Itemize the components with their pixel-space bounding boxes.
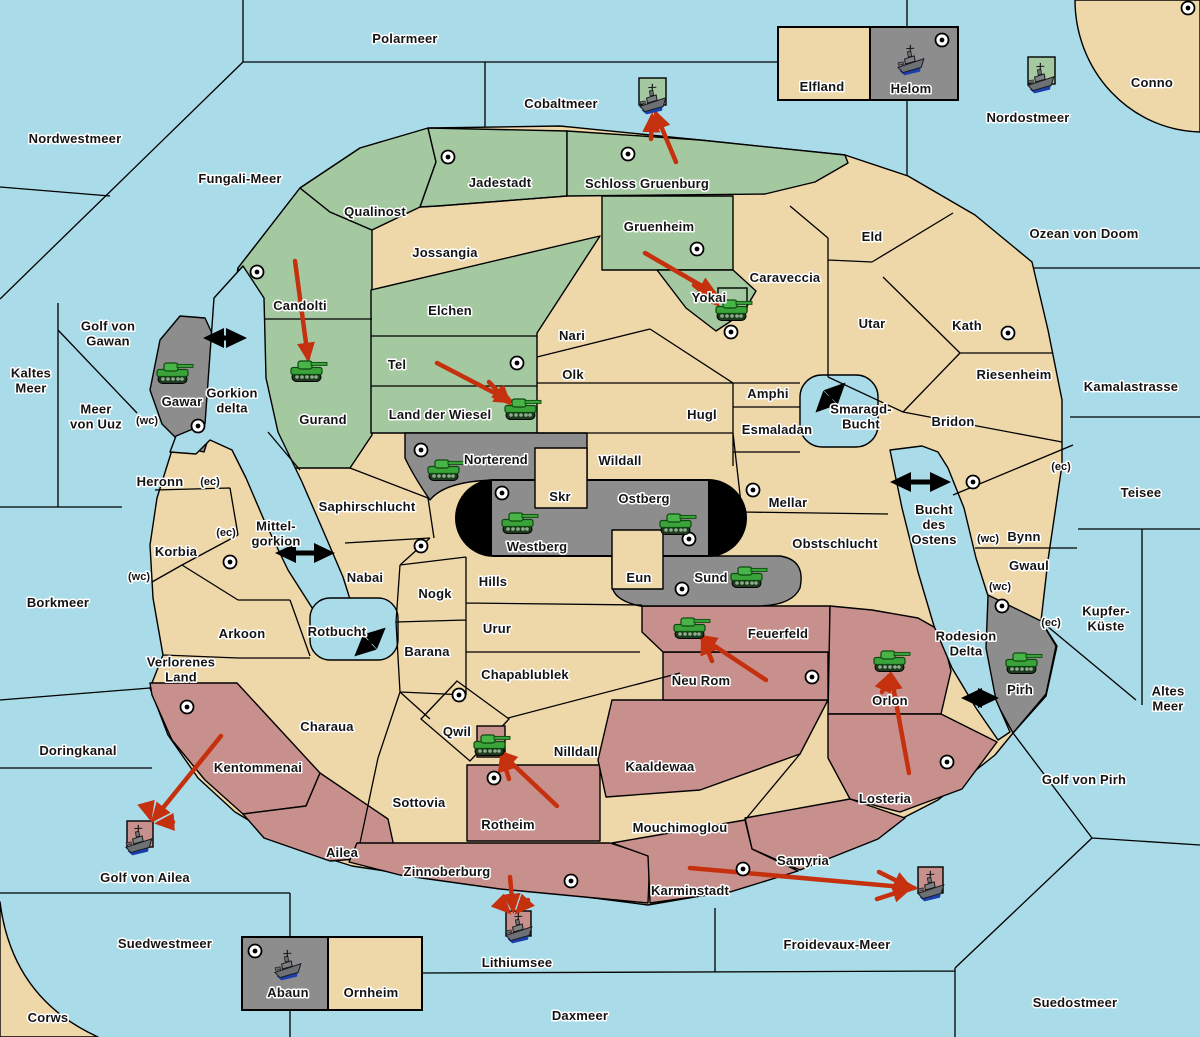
supply-center-dot (442, 151, 455, 164)
label-tel: Tel (388, 357, 406, 372)
move-arrow (147, 806, 150, 817)
label-norterend: Norterend (464, 452, 528, 467)
label-golf-von-ailea: Golf von Ailea (100, 870, 190, 885)
supply-center-dot (415, 444, 428, 457)
label-kupfer: Kupfer-Küste (1082, 604, 1130, 634)
label-saphirschlucht: Saphirschlucht (319, 499, 416, 514)
label-suedwestmeer: Suedwestmeer (118, 936, 212, 951)
label-ostberg: Ostberg (618, 491, 669, 506)
label-bynn: Bynn (1007, 529, 1040, 544)
label-pirh: Pirh (1007, 682, 1033, 697)
label-qualinost: Qualinost (344, 204, 406, 219)
coast-marker-wc: (wc) (977, 533, 999, 545)
label-urur: Urur (483, 621, 511, 636)
label-land-der-wiesel: Land der Wiesel (389, 407, 492, 422)
label-ozean-von-doom: Ozean von Doom (1030, 226, 1139, 241)
label-kentommenai: Kentommenai (214, 760, 302, 775)
label-riesenheim: Riesenheim (977, 367, 1052, 382)
move-arrow (651, 117, 652, 139)
label-heronn: Heronn (137, 474, 184, 489)
label-gwaul: Gwaul (1009, 558, 1049, 573)
label-mellar: Mellar (769, 495, 808, 510)
label-charaua: Charaua (300, 719, 354, 734)
label-rotheim: Rotheim (481, 817, 534, 832)
supply-center-dot (936, 34, 949, 47)
label-korbia: Korbia (155, 544, 198, 559)
supply-center-dot (1182, 2, 1195, 15)
label-samyria: Samyria (777, 853, 830, 868)
label-karminstadt: Karminstadt (651, 883, 730, 898)
label-gruenheim: Gruenheim (624, 219, 694, 234)
label-feuerfeld: Feuerfeld (748, 626, 808, 641)
supply-center-dot (941, 756, 954, 769)
supply-center-dot (691, 243, 704, 256)
label-ornheim: Ornheim (344, 985, 399, 1000)
label-altes: AltesMeer (1152, 684, 1185, 714)
label-daxmeer: Daxmeer (552, 1008, 608, 1023)
supply-center-dot (565, 875, 578, 888)
supply-center-dot (181, 701, 194, 714)
label-fungali-meer: Fungali-Meer (198, 171, 281, 186)
coast-marker-wc: (wc) (136, 415, 158, 427)
label-nordostmeer: Nordostmeer (986, 110, 1069, 125)
supply-center-dot (622, 148, 635, 161)
label-suedostmeer: Suedostmeer (1033, 995, 1118, 1010)
label-abaun: Abaun (267, 985, 308, 1000)
move-arrow (159, 822, 173, 823)
label-mouchimoglou: Mouchimoglou (633, 820, 728, 835)
label-polarmeer: Polarmeer (372, 31, 437, 46)
label-froidevaux-meer: Froidevaux-Meer (783, 937, 890, 952)
coast-marker-wc: (wc) (989, 581, 1011, 593)
supply-center-dot (737, 863, 750, 876)
label-westberg: Westberg (507, 539, 568, 554)
label-utar: Utar (859, 316, 886, 331)
label-candolti: Candolti (273, 298, 327, 313)
label-arkoon: Arkoon (219, 626, 266, 641)
supply-center-dot (251, 266, 264, 279)
label-golf-von: Golf vonGawan (81, 319, 135, 349)
coast-marker-ec: (ec) (1041, 617, 1061, 629)
label-eun: Eun (626, 570, 651, 585)
label-doringkanal: Doringkanal (39, 743, 116, 758)
label-kaltes: KaltesMeer (11, 366, 51, 396)
supply-center-dot (453, 689, 466, 702)
supply-center-dot (496, 487, 509, 500)
label-jadestadt: Jadestadt (469, 175, 532, 190)
supply-center-dot (806, 671, 819, 684)
supply-center-dot (996, 600, 1009, 613)
label-golf-von-pirh: Golf von Pirh (1042, 772, 1126, 787)
label-esmaladan: Esmaladan (742, 422, 812, 437)
label-nilldall: Nilldall (554, 744, 598, 759)
label-amphi: Amphi (747, 386, 788, 401)
supply-center-dot (967, 476, 980, 489)
label-elfland: Elfland (800, 79, 845, 94)
label-jossangia: Jossangia (412, 245, 478, 260)
label-orlon: Orlon (872, 693, 908, 708)
label-kamalastrasse: Kamalastrasse (1084, 379, 1178, 394)
supply-center-dot (1002, 327, 1015, 340)
label-rotbucht: Rotbucht (308, 624, 367, 639)
label-losteria: Losteria (859, 791, 912, 806)
supply-center-dot (511, 357, 524, 370)
coast-marker-ec: (ec) (216, 527, 236, 539)
coast-marker-ec: (ec) (200, 476, 220, 488)
label-hugl: Hugl (687, 407, 717, 422)
label-sottovia: Sottovia (393, 795, 446, 810)
supply-center-dot (725, 326, 738, 339)
label-gawar: Gawar (162, 394, 203, 409)
label-kaaldewaa: Kaaldewaa (625, 759, 695, 774)
label-ailea: Ailea (326, 845, 359, 860)
label-conno: Conno (1131, 75, 1173, 90)
label-kath: Kath (952, 318, 982, 333)
move-arrow (510, 877, 513, 909)
supply-center-dot (415, 540, 428, 553)
label-helom: Helom (891, 81, 932, 96)
label-gurand: Gurand (299, 412, 346, 427)
label-wildall: Wildall (598, 453, 641, 468)
coast-marker-ec: (ec) (1051, 461, 1071, 473)
label-nabai: Nabai (347, 570, 383, 585)
label-qwil: Qwil (443, 724, 471, 739)
supply-center-dot (488, 772, 501, 785)
label-cobaltmeer: Cobaltmeer (524, 96, 598, 111)
supply-center-dot (249, 945, 262, 958)
label-yokai: Yokai (692, 290, 727, 305)
game-map[interactable]: PolarmeerNordwestmeerFungali-MeerCobaltm… (0, 0, 1200, 1037)
label-caraveccia: Caraveccia (750, 270, 821, 285)
label-nari: Nari (559, 328, 585, 343)
label-chapablublek: Chapablublek (481, 667, 569, 682)
label-sund: Sund (694, 570, 727, 585)
supply-center-dot (747, 484, 760, 497)
region-jadestadt (420, 128, 567, 207)
label-obstschlucht: Obstschlucht (792, 536, 878, 551)
supply-center-dot (224, 556, 237, 569)
label-eld: Eld (862, 229, 883, 244)
map-stage: PolarmeerNordwestmeerFungali-MeerCobaltm… (0, 0, 1200, 1037)
label-nordwestmeer: Nordwestmeer (29, 131, 122, 146)
supply-center-dot (676, 583, 689, 596)
label-neu-rom: Neu Rom (672, 673, 730, 688)
supply-center-dot (192, 420, 205, 433)
coast-marker-wc: (wc) (128, 571, 150, 583)
label-zinnoberburg: Zinnoberburg (404, 864, 491, 879)
label-olk: Olk (562, 367, 584, 382)
label-teisee: Teisee (1121, 485, 1162, 500)
label-elchen: Elchen (428, 303, 472, 318)
label-corws: Corws (28, 1010, 69, 1025)
label-nogk: Nogk (418, 586, 452, 601)
label-skr: Skr (549, 489, 571, 504)
label-hills: Hills (479, 574, 507, 589)
label-schloss-gruenburg: Schloss Gruenburg (585, 176, 709, 191)
label-borkmeer: Borkmeer (27, 595, 89, 610)
label-mittel: Mittel-gorkion (251, 519, 300, 549)
label-bridon: Bridon (931, 414, 974, 429)
label-barana: Barana (404, 644, 450, 659)
label-lithiumsee: Lithiumsee (482, 955, 553, 970)
